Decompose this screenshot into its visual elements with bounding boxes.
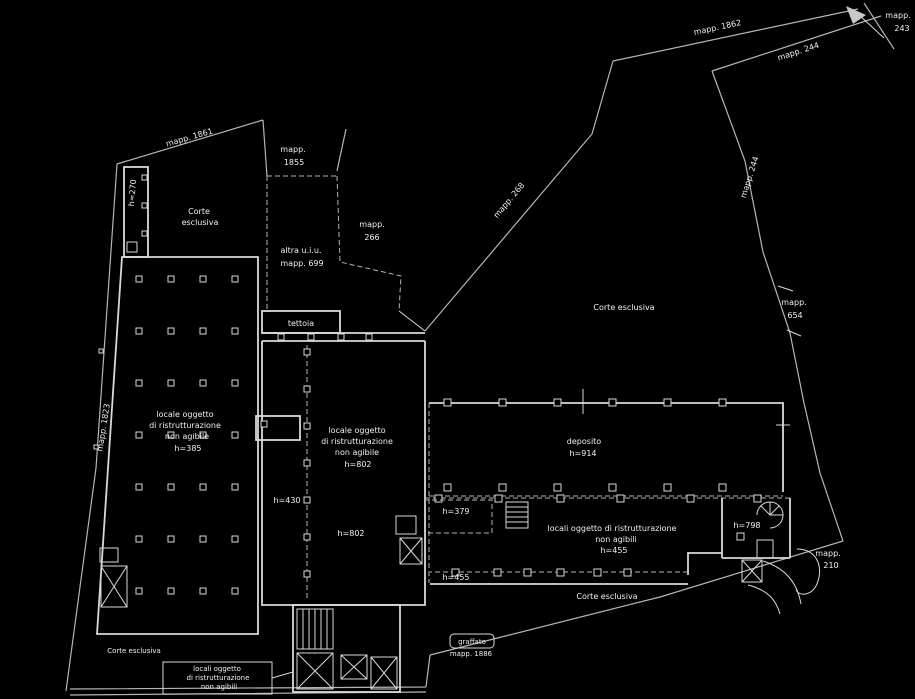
label-h802: h=802: [337, 529, 364, 538]
label-locale-left: locale oggetto: [156, 410, 213, 419]
label-locale-center: locale oggetto: [328, 426, 385, 435]
boundary-link: [399, 311, 425, 331]
label-mapp-244-top: mapp. 244: [776, 41, 820, 63]
label-corte-nw: esclusiva: [182, 218, 219, 227]
north-arrow-icon: [846, 6, 884, 38]
label-mapp-268: mapp. 268: [492, 181, 527, 220]
label-h430: h=430: [273, 496, 300, 505]
label-mapp-1862: mapp. 1862: [693, 18, 742, 37]
label-locali-south: h=455: [600, 546, 627, 555]
label-mapp-654: 654: [787, 311, 802, 320]
label-locali-sw: locali oggetto: [193, 665, 241, 673]
label-corte-ne: Corte esclusiva: [593, 303, 654, 312]
parcel-boundaries: [66, 3, 894, 695]
room-h379: [424, 500, 492, 533]
boundary-mapp-243: [864, 3, 894, 49]
label-h270: h=270: [127, 179, 138, 207]
label-locali-sw: di ristrutturazione: [187, 674, 250, 682]
small-room: [396, 516, 416, 534]
label-locale-center: non agibile: [335, 448, 379, 457]
label-corte-se: Corte esclusiva: [576, 592, 637, 601]
label-mapp-1855: mapp.: [280, 145, 305, 154]
label-h455: h=455: [442, 573, 469, 582]
stairs: [506, 502, 528, 528]
label-graffato: graffato: [458, 638, 486, 646]
label-h798: h=798: [733, 521, 760, 530]
driveway-arcs: [748, 561, 801, 614]
label-locali-south: non agibili: [595, 535, 637, 544]
tettoia-structure: [262, 311, 425, 341]
label-altra-uiu: altra u.i.u.: [281, 246, 322, 255]
label-locali-sw: non agibili: [201, 683, 237, 691]
label-mapp-266: 266: [364, 233, 379, 242]
label-h379: h=379: [442, 507, 469, 516]
label-tettoia: tettoia: [288, 319, 314, 328]
boundary-1855-east: [337, 176, 401, 311]
boundary-west: [66, 164, 117, 691]
label-locali-south: locali oggetto di ristrutturazione: [548, 524, 677, 533]
cadastral-floor-plan: mapp. 1862 mapp. 244 mapp. 243 mapp. 244…: [0, 0, 915, 699]
label-deposito: h=914: [569, 449, 596, 458]
label-locale-left: non agibile: [165, 432, 209, 441]
label-mapp-244-side: mapp. 244: [739, 155, 761, 199]
boundary-east: [712, 71, 843, 541]
boundary-1855-tick: [337, 129, 346, 171]
text-labels: mapp. 1862 mapp. 244 mapp. 243 mapp. 244…: [95, 11, 910, 691]
label-mapp-243: mapp.: [885, 11, 910, 20]
boundary-mark: [99, 349, 103, 353]
label-mapp-210: mapp.: [815, 549, 840, 558]
label-corte-nw: Corte: [188, 207, 210, 216]
label-mapp-266: mapp.: [359, 220, 384, 229]
boundary-corner-nw: [263, 120, 267, 176]
label-locale-center: di ristrutturazione: [321, 437, 393, 446]
label-altra-uiu: mapp. 699: [280, 259, 323, 268]
label-mapp-654: mapp.: [781, 298, 806, 307]
label-mapp-243: 243: [894, 24, 909, 33]
boundary-mapp-268: [425, 61, 613, 331]
label-mapp-210: 210: [823, 561, 838, 570]
label-locale-left: h=385: [174, 444, 201, 453]
center-building: [256, 341, 425, 605]
label-graffato: mapp. 1886: [450, 650, 493, 658]
label-mapp-1855: 1855: [284, 158, 304, 167]
label-corte-sw: Corte esclusiva: [107, 647, 161, 655]
floor-plan-canvas: mapp. 1862 mapp. 244 mapp. 243 mapp. 244…: [0, 0, 915, 699]
label-locale-left: di ristrutturazione: [149, 421, 221, 430]
spiral-stair: [757, 502, 783, 528]
service-block: [293, 605, 400, 692]
label-locale-center: h=802: [344, 460, 371, 469]
label-deposito: deposito: [567, 437, 602, 446]
